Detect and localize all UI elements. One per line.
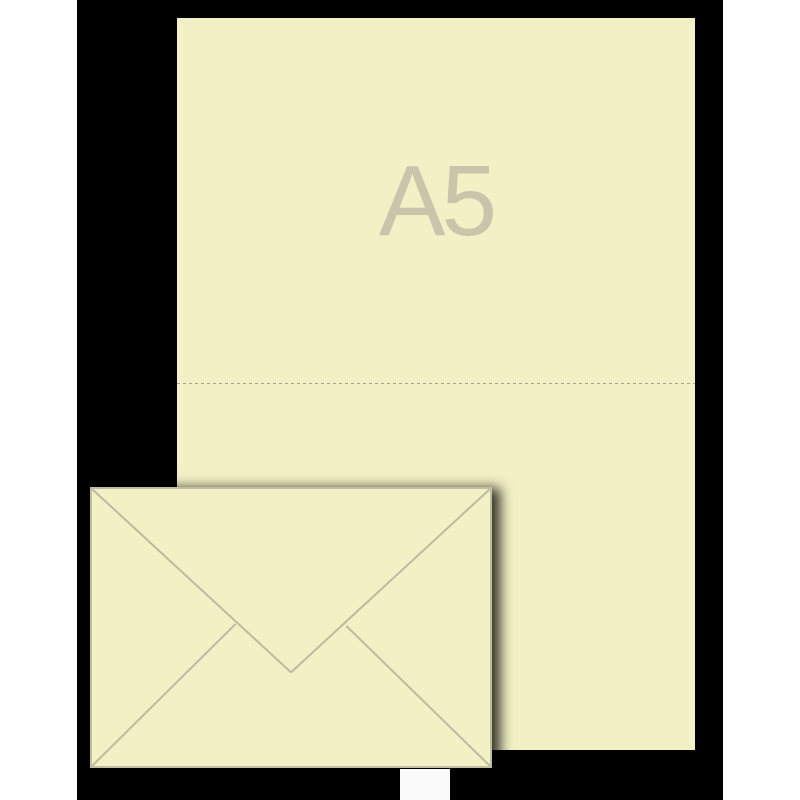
envelope-flap-lines-icon (92, 489, 490, 766)
sheet-front-panel: A5 (177, 18, 695, 384)
bottom-white-cutout (400, 769, 450, 800)
envelope (90, 487, 492, 768)
fold-line (177, 383, 695, 384)
sheet-size-label: A5 (379, 151, 493, 251)
product-page-canvas: A5 (0, 0, 800, 800)
